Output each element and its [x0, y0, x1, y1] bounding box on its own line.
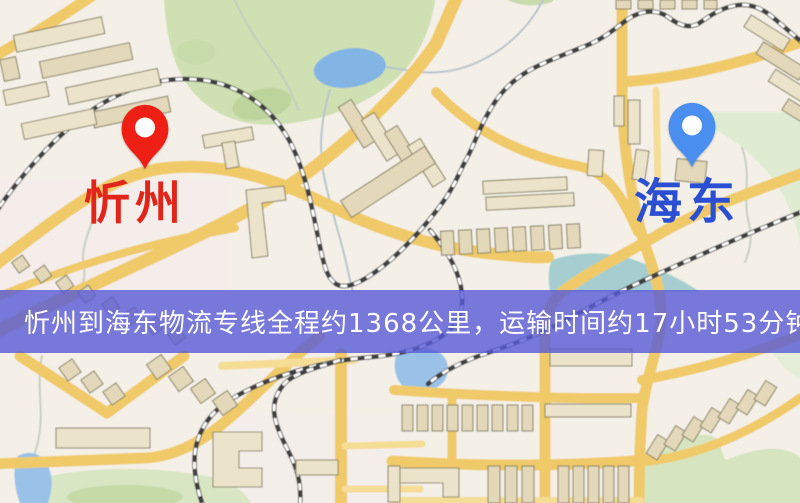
origin-pin-hole: [135, 118, 155, 138]
destination-pin-icon[interactable]: [666, 100, 718, 170]
destination-pin-hole: [682, 116, 702, 136]
screenshot-root: 忻州 海东 忻州到海东物流专线全程约1368公里，运输时间约17小时53分钟.: [0, 0, 800, 503]
origin-city-label: 忻州: [84, 180, 186, 226]
map-canvas[interactable]: [0, 0, 800, 503]
route-summary-text: 忻州到海东物流专线全程约1368公里，运输时间约17小时53分钟.: [0, 303, 800, 340]
destination-city-label: 海东: [634, 178, 740, 226]
origin-pin-icon[interactable]: [119, 102, 171, 172]
route-info-banner: 忻州到海东物流专线全程约1368公里，运输时间约17小时53分钟.: [0, 290, 800, 353]
